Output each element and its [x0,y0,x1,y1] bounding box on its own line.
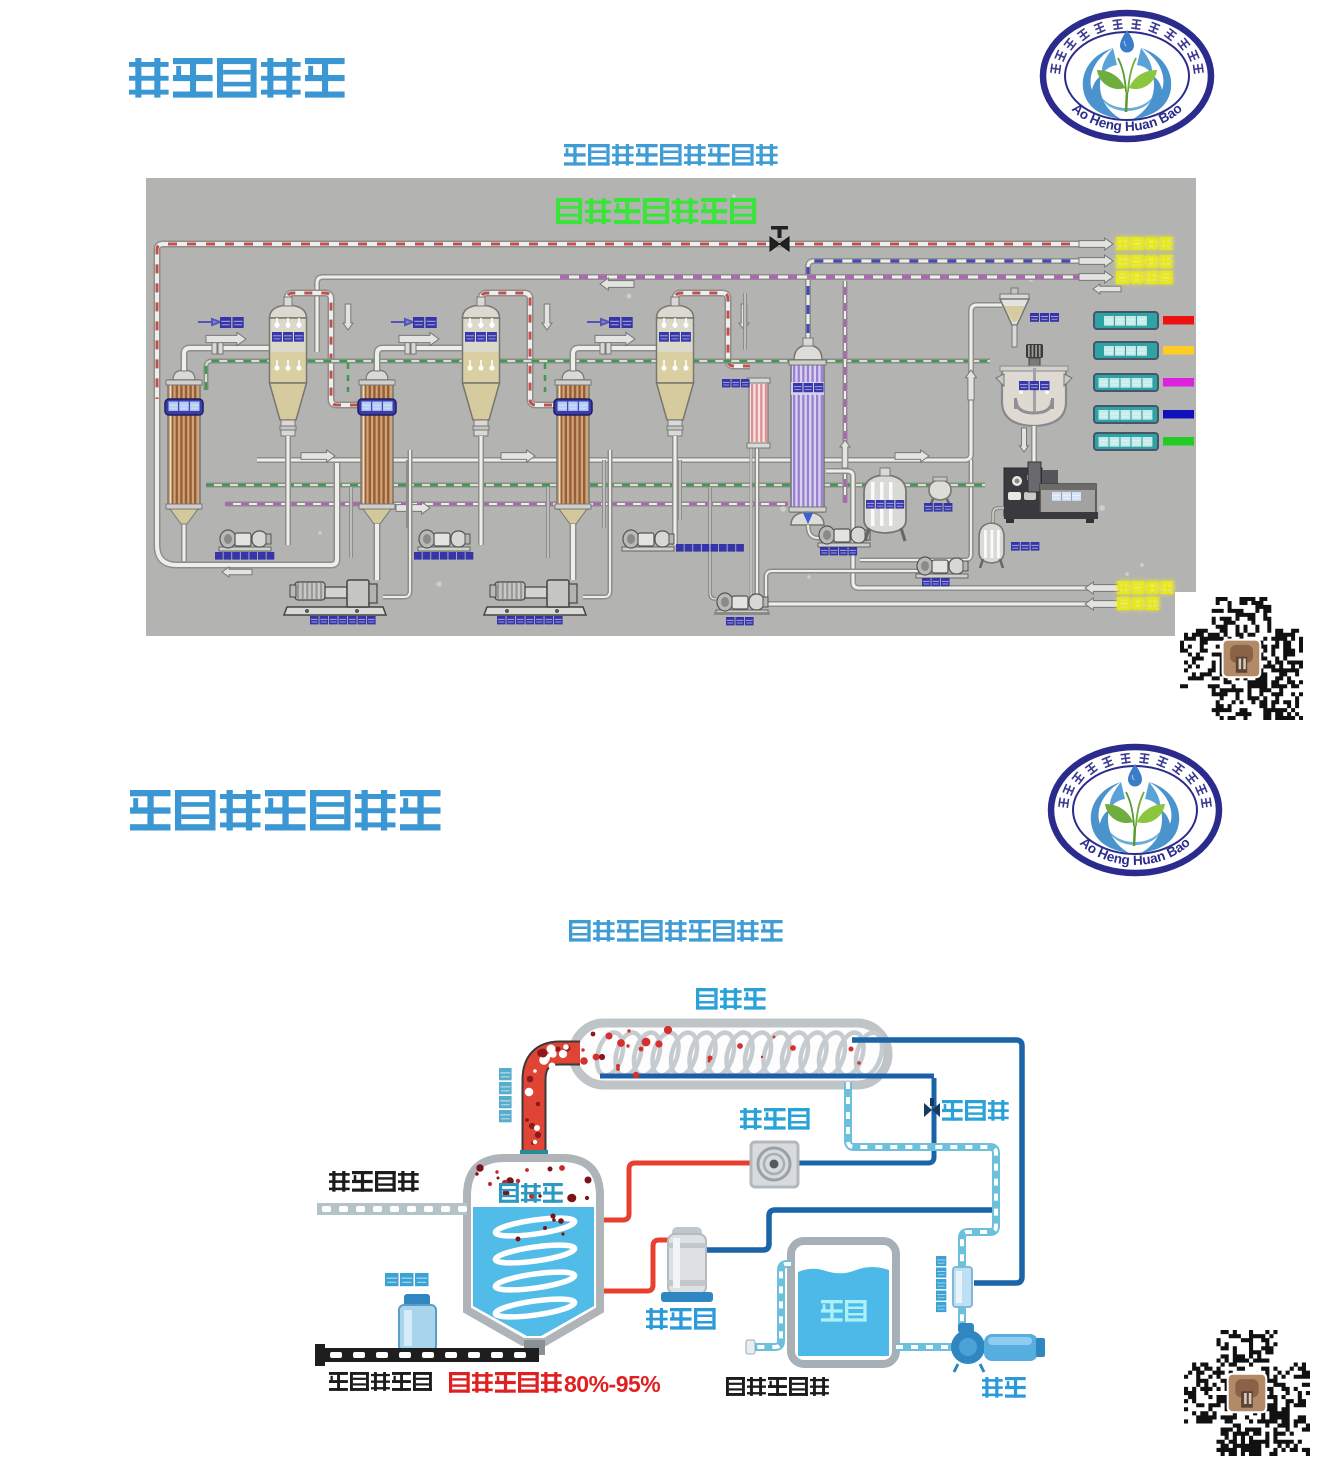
svg-text:80%-95%: 80%-95% [564,1371,660,1397]
